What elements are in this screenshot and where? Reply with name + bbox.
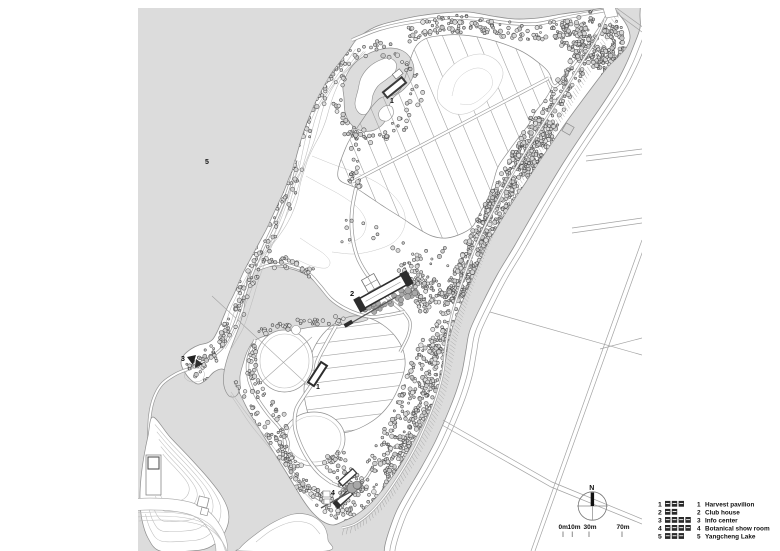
svg-text:1: 1 [658,502,662,509]
svg-text:1: 1 [697,502,701,509]
svg-text:3: 3 [658,518,662,525]
svg-text:5: 5 [205,159,209,166]
svg-text:Info center: Info center [705,518,738,525]
svg-text:5: 5 [697,534,701,541]
svg-text:4: 4 [331,490,335,497]
svg-text:N: N [589,485,594,492]
svg-text:70m: 70m [617,524,630,531]
svg-text:3: 3 [697,518,701,525]
svg-text:1: 1 [316,384,320,391]
svg-text:Botanical show room: Botanical show room [705,526,770,533]
svg-text:10m: 10m [568,524,581,531]
svg-text:Club house: Club house [705,510,740,517]
svg-text:5: 5 [658,534,662,541]
svg-text:3: 3 [181,356,185,363]
svg-text:2: 2 [658,510,662,517]
svg-text:2: 2 [697,510,701,517]
svg-text:4: 4 [697,526,701,533]
svg-text:Yangcheng Lake: Yangcheng Lake [705,534,756,541]
svg-text:Harvest pavilion: Harvest pavilion [705,502,754,509]
svg-text:4: 4 [658,526,662,533]
svg-text:1: 1 [390,98,394,105]
svg-text:30m: 30m [584,524,597,531]
svg-text:2: 2 [350,289,354,298]
